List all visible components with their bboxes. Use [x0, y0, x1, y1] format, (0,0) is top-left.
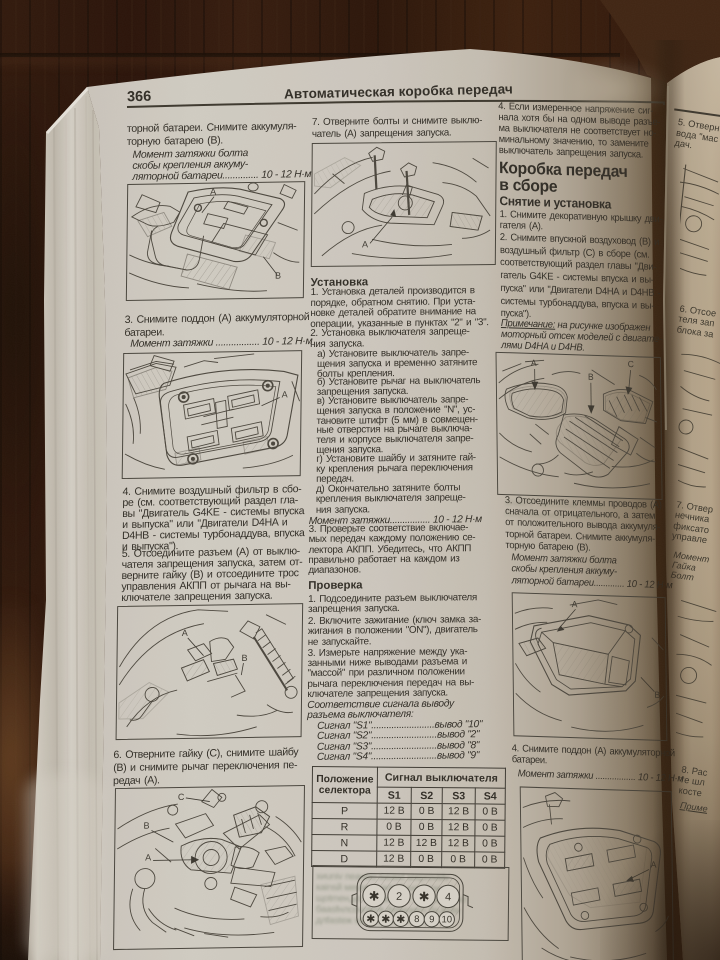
svg-text:B: B [654, 690, 660, 700]
svg-text:A: A [531, 358, 537, 368]
svg-text:B: B [241, 653, 247, 663]
svg-text:✱: ✱ [366, 914, 375, 926]
svg-text:A: A [362, 239, 368, 249]
svg-text:A: A [145, 852, 151, 862]
svg-text:A: A [282, 389, 288, 399]
svg-text:✱: ✱ [369, 889, 380, 904]
svg-text:2: 2 [396, 891, 402, 903]
svg-text:✱: ✱ [396, 914, 405, 926]
svg-text:4: 4 [445, 891, 451, 903]
svg-text:C: C [628, 359, 634, 369]
svg-text:A: A [182, 628, 188, 638]
svg-text:A: A [210, 187, 216, 197]
svg-text:B: B [275, 271, 281, 281]
svg-text:B: B [143, 821, 149, 831]
svg-text:A: A [651, 859, 657, 869]
svg-text:✱: ✱ [419, 889, 430, 904]
svg-text:9: 9 [429, 914, 434, 925]
svg-text:A: A [572, 599, 578, 609]
svg-text:✱: ✱ [381, 914, 390, 926]
svg-text:C: C [178, 792, 185, 802]
svg-text:B: B [588, 372, 594, 382]
svg-text:8: 8 [414, 914, 419, 925]
svg-text:10: 10 [441, 914, 452, 925]
